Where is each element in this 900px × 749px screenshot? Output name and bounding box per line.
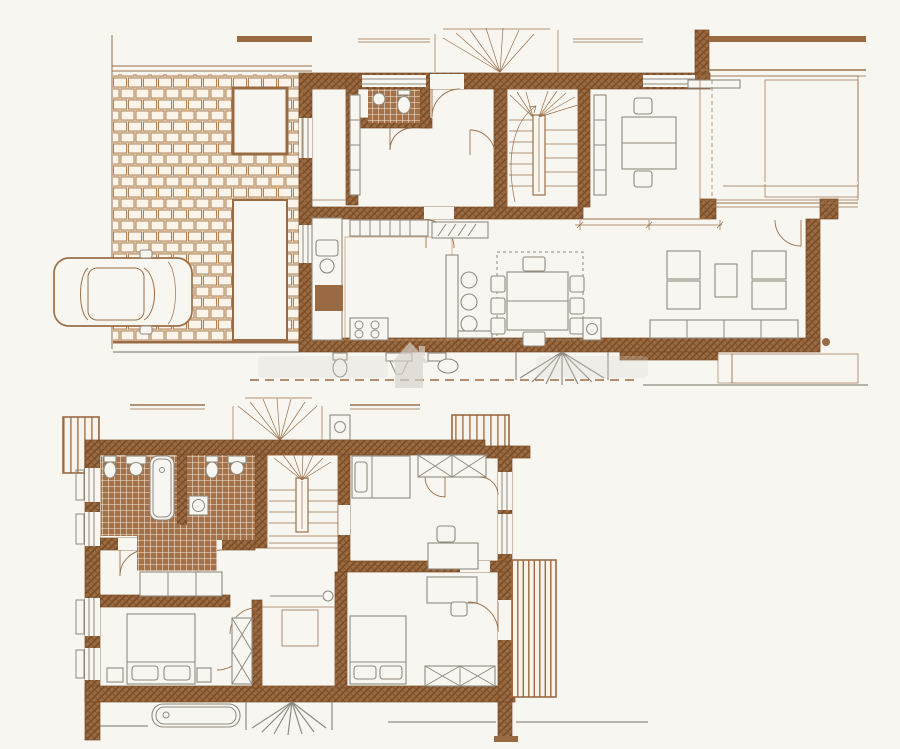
floor-plan-sheet	[0, 0, 900, 749]
bedroom-bottom-right	[350, 577, 498, 686]
dresser	[140, 572, 222, 596]
study-chair	[634, 98, 652, 114]
kitchen-counter	[312, 218, 342, 340]
entry-door-opening	[430, 74, 464, 89]
dining-chair	[491, 276, 505, 292]
dining-chair	[570, 298, 584, 314]
roof-edge-right	[709, 36, 866, 42]
roof-edge	[237, 36, 312, 42]
watermark-text-left	[258, 356, 388, 378]
chair	[451, 602, 467, 616]
nightstand	[197, 668, 211, 682]
wc-toilet	[398, 97, 411, 114]
wc-sink	[373, 93, 385, 105]
pillow	[355, 462, 367, 492]
dining-chair	[523, 332, 545, 346]
pillow	[354, 666, 376, 679]
car-mirror	[140, 326, 152, 334]
upper-floor-plan	[63, 398, 648, 742]
kitchen-block	[315, 285, 343, 311]
dining-chair	[491, 318, 505, 334]
chimney-column	[330, 415, 350, 440]
sideboard	[432, 222, 488, 238]
washbasin	[130, 463, 143, 476]
bedroom-top-right	[352, 455, 498, 569]
dining-chair	[570, 276, 584, 292]
pillow	[380, 666, 402, 679]
garden-path	[233, 200, 287, 340]
nightstand	[107, 668, 123, 682]
neighbor-wc	[438, 359, 458, 373]
armchair	[667, 251, 700, 279]
armchair	[667, 281, 700, 309]
watermark-text-right	[536, 356, 648, 378]
pillow	[132, 666, 158, 680]
neighbor-stair-top	[435, 28, 558, 72]
armchair	[752, 281, 786, 309]
wardrobe-tall	[232, 618, 252, 684]
kitchen-cabinets	[350, 220, 428, 236]
staircase-ground	[507, 89, 578, 207]
car-mirror	[140, 250, 152, 258]
ground-floor-plan	[54, 28, 868, 385]
dimension-line	[575, 220, 723, 230]
wc	[368, 89, 420, 150]
toilet	[206, 462, 218, 478]
bar-stool	[461, 316, 477, 332]
kitchen-sink	[316, 240, 338, 256]
desk	[428, 543, 478, 569]
bathtub	[150, 456, 174, 520]
bar-stool	[461, 272, 477, 288]
bar-counter	[446, 255, 458, 338]
wall-fitting	[822, 338, 830, 346]
bedroom-left	[107, 572, 256, 684]
neighbor-stair-fan-lower	[246, 702, 332, 735]
study-chair	[634, 171, 652, 187]
washbasin	[231, 462, 244, 475]
toilet	[104, 462, 116, 478]
terrace-deck	[700, 70, 866, 200]
armchair	[752, 251, 786, 279]
bar-stool	[461, 294, 477, 310]
dining-chair	[523, 257, 545, 271]
pillow	[164, 666, 190, 680]
balcony-right	[512, 560, 556, 697]
planter-bed	[233, 88, 287, 154]
balcony-door-opening	[498, 600, 512, 640]
side-table	[583, 318, 601, 340]
desk	[427, 577, 477, 603]
chair	[437, 526, 455, 542]
neighbor-unit-cutoff-upper	[85, 702, 648, 742]
dressing-tiled-floor	[137, 525, 217, 571]
staircase-upper	[267, 453, 338, 548]
living-area	[583, 220, 801, 340]
dotted-floor-room	[262, 591, 335, 688]
dining-chair	[570, 318, 584, 334]
coffee-table	[715, 264, 737, 297]
floor-plan-drawing	[0, 0, 900, 749]
shower	[189, 496, 208, 515]
wall-shelf	[688, 80, 740, 88]
neighbor-stair-upper	[233, 398, 322, 440]
dining-chair	[491, 298, 505, 314]
lower-terrace-strip	[732, 354, 858, 383]
car	[54, 250, 192, 334]
